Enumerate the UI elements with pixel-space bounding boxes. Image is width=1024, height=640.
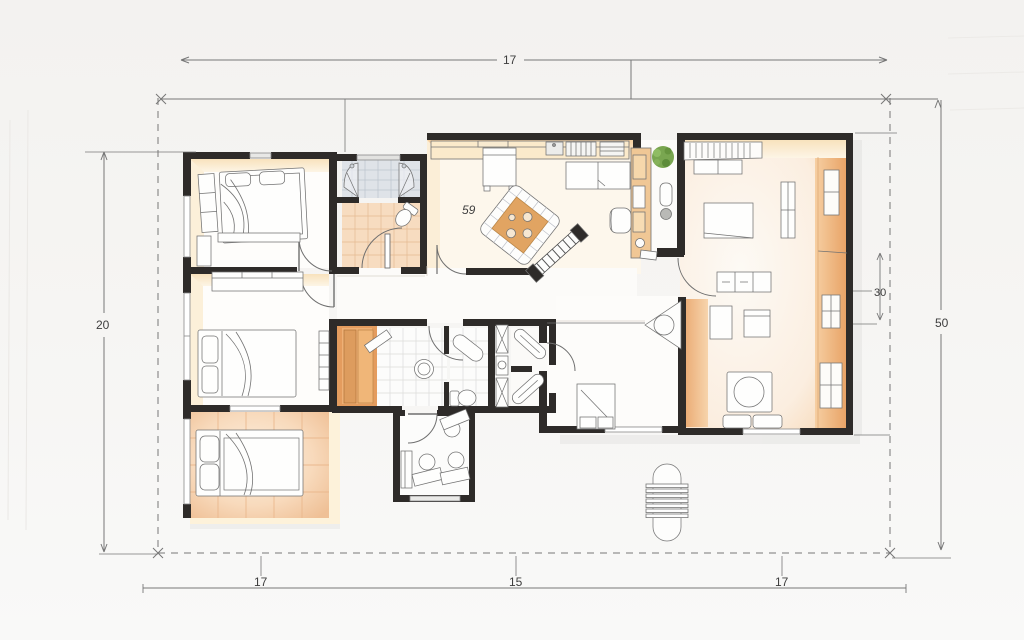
svg-text:17: 17	[503, 53, 517, 67]
svg-text:15: 15	[509, 575, 523, 589]
svg-text:20: 20	[96, 318, 110, 332]
svg-text:59: 59	[462, 203, 476, 217]
svg-text:17: 17	[254, 575, 268, 589]
svg-text:30: 30	[874, 287, 886, 299]
svg-text:17: 17	[775, 575, 789, 589]
svg-text:50: 50	[935, 316, 949, 330]
